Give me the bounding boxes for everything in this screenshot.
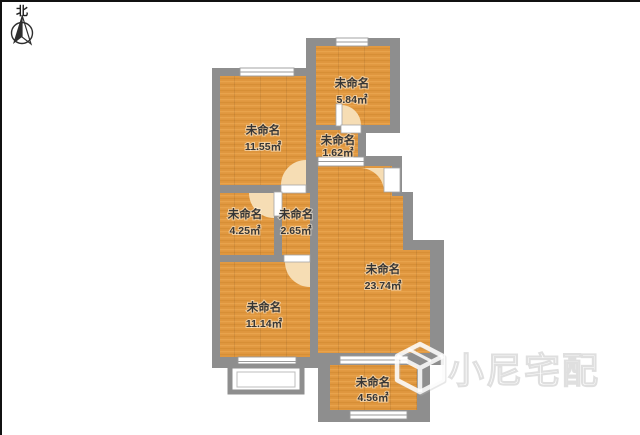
room-e-floor[interactable] (282, 193, 310, 255)
room-g-name: 未命名 (355, 375, 391, 389)
room-e-name: 未命名 (278, 207, 314, 221)
room-d-name: 未命名 (227, 207, 263, 221)
room-f-area: 11.14㎡ (246, 317, 283, 330)
floorplan-svg: 未命名 11.55㎡ 未命名 5.84㎡ 未命名 1.62㎡ 未命名 4.25㎡… (0, 0, 640, 435)
compass-icon (12, 15, 33, 44)
room-c-name: 未命名 (320, 133, 356, 147)
floorplan-canvas: 未命名 11.55㎡ 未命名 5.84㎡ 未命名 1.62㎡ 未命名 4.25㎡… (0, 0, 640, 435)
door-leaf-room-a[interactable] (281, 185, 306, 193)
room-a-area: 11.55㎡ (245, 140, 282, 153)
room-c-area: 1.62㎡ (323, 146, 354, 159)
top-border (0, 0, 640, 2)
compass: 北 (12, 3, 33, 44)
window-room-g-bottom[interactable] (350, 411, 407, 419)
room-d-area: 4.25㎡ (230, 224, 261, 237)
room-b-area: 5.84㎡ (337, 93, 368, 106)
balcony[interactable] (230, 366, 302, 392)
room-big-name: 未命名 (365, 262, 401, 276)
room-big-area: 23.74㎡ (365, 279, 402, 292)
room-a-name: 未命名 (245, 123, 281, 137)
window-room-a-top[interactable] (240, 68, 294, 76)
door-leaf-entrance[interactable] (384, 168, 400, 192)
room-b-name: 未命名 (334, 76, 370, 90)
watermark-brand: 小尼宅配 (448, 350, 600, 392)
window-room-b-top[interactable] (336, 38, 368, 46)
door-opening-room-b (341, 125, 361, 133)
door-leaf-room-b[interactable] (336, 104, 342, 126)
room-big-floor[interactable] (318, 166, 430, 353)
room-f-name: 未命名 (246, 300, 282, 314)
room-e-area: 2.65㎡ (281, 224, 312, 237)
room-g-area: 4.56㎡ (358, 391, 389, 404)
left-border (0, 0, 2, 435)
door-leaf-room-f[interactable] (284, 255, 310, 262)
